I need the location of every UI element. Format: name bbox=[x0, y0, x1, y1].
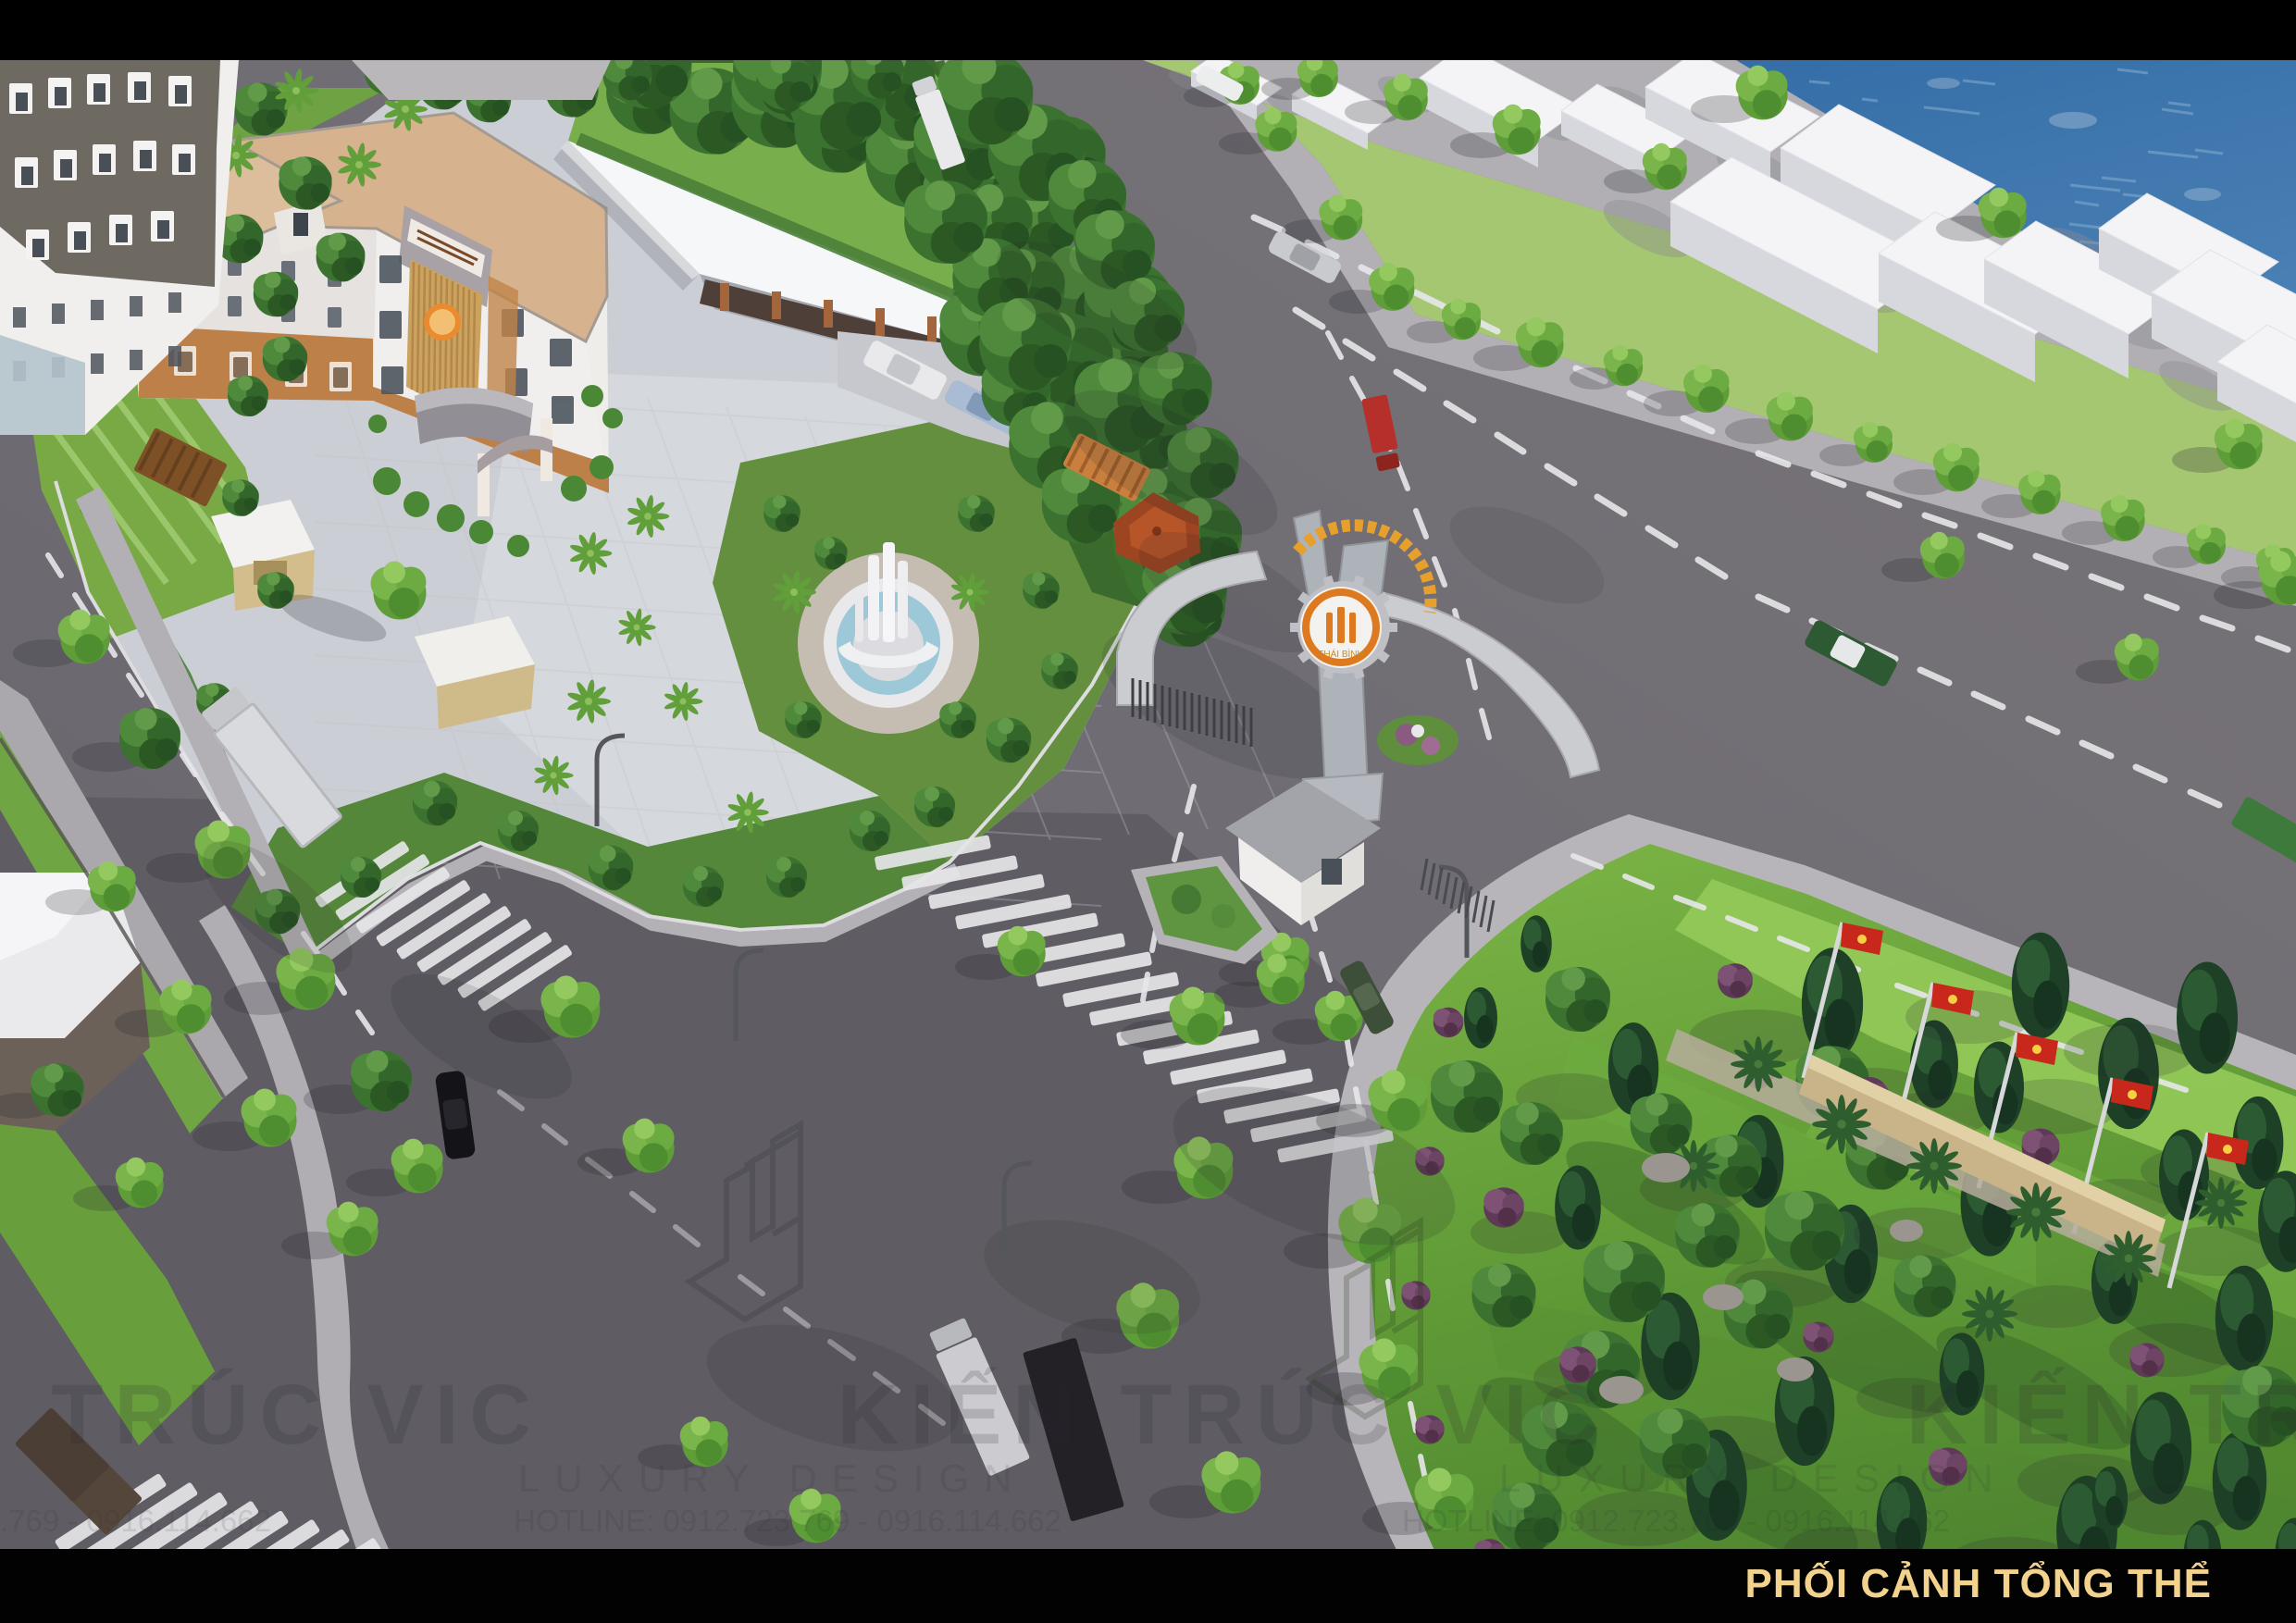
svg-text:.769 - 0916.114.662: .769 - 0916.114.662 bbox=[0, 1504, 271, 1538]
svg-text:LUXURY DESIGN: LUXURY DESIGN bbox=[518, 1456, 1027, 1500]
svg-text:KIẾN TRÚC: KIẾN TRÚC bbox=[1906, 1367, 2296, 1462]
svg-text:THÁI BÌNH: THÁI BÌNH bbox=[1318, 648, 1363, 660]
svg-text:KIẾN TRÚC VIC: KIẾN TRÚC VIC bbox=[0, 1367, 542, 1462]
svg-text:HOTLINE: 0912.723.769 - 0916.1: HOTLINE: 0912.723.769 - 0916.114.662 bbox=[1402, 1504, 1950, 1538]
svg-text:PHỐI CẢNH TỔNG THỂ: PHỐI CẢNH TỔNG THỂ bbox=[1745, 1559, 2212, 1606]
svg-text:KIẾN TRÚC VIC: KIẾN TRÚC VIC bbox=[838, 1367, 1611, 1462]
svg-text:LUXURY DESIGN: LUXURY DESIGN bbox=[1499, 1456, 2008, 1500]
svg-text:HOTLINE: 0912.723.769 - 0916.1: HOTLINE: 0912.723.769 - 0916.114.662 bbox=[514, 1504, 1061, 1538]
